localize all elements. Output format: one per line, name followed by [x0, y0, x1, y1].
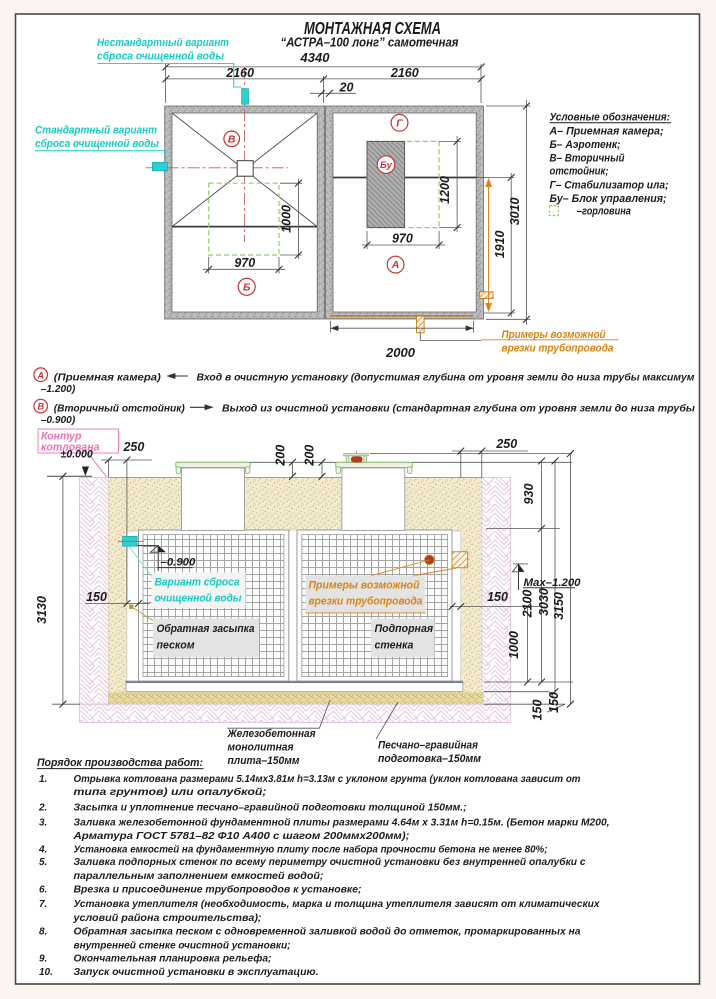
svg-text:930: 930 — [522, 484, 536, 505]
svg-text:условий района строительства);: условий района строительства); — [72, 913, 261, 924]
svg-text:3030: 3030 — [537, 588, 551, 616]
svg-text:20: 20 — [339, 81, 354, 95]
svg-text:150: 150 — [487, 590, 508, 604]
svg-text:Примеры возможной: Примеры возможной — [502, 329, 606, 341]
svg-text:В: В — [37, 402, 44, 412]
svg-text:5.: 5. — [39, 857, 47, 868]
svg-text:970: 970 — [392, 232, 413, 246]
svg-text:1000: 1000 — [507, 631, 521, 659]
svg-text:9.: 9. — [39, 954, 47, 965]
svg-text:7.: 7. — [39, 899, 47, 910]
svg-text:1200: 1200 — [438, 176, 452, 204]
svg-text:Обратная засыпка песком с одно: Обратная засыпка песком с одновременной … — [74, 926, 581, 938]
svg-text:врезки трубопровода: врезки трубопровода — [309, 596, 423, 608]
svg-text:Установка емкостей на фундамен: Установка емкостей на фундаментную плиту… — [74, 844, 548, 856]
svg-text:стенка: стенка — [375, 640, 414, 652]
svg-text:150: 150 — [531, 700, 545, 721]
svg-text:Бу: Бу — [380, 160, 393, 171]
svg-text:Подпорная: Подпорная — [375, 623, 434, 635]
svg-text:А: А — [36, 370, 44, 380]
svg-text:“АСТРА–100 лонг” самотечная: “АСТРА–100 лонг” самотечная — [281, 35, 459, 50]
svg-text:4340: 4340 — [300, 50, 331, 65]
svg-text:В: В — [228, 133, 236, 145]
svg-text:±0.000: ±0.000 — [61, 448, 93, 460]
svg-text:Выход из очистной установки (с: Выход из очистной установки (стандартная… — [222, 403, 695, 415]
svg-text:3150: 3150 — [552, 592, 566, 620]
svg-text:Условные обозначения:: Условные обозначения: — [550, 111, 671, 123]
svg-text:типа грунтов) или опалубкой;: типа грунтов) или опалубкой; — [74, 786, 267, 798]
svg-text:монолитная: монолитная — [228, 742, 295, 754]
svg-text:отстойник;: отстойник; — [550, 165, 609, 177]
svg-text:Примеры возможной: Примеры возможной — [309, 580, 421, 592]
svg-text:10.: 10. — [39, 967, 53, 978]
svg-text:сброса очищенной воды: сброса очищенной воды — [97, 51, 224, 63]
svg-text:–0.900): –0.900) — [41, 415, 76, 426]
svg-text:4.: 4. — [38, 845, 47, 856]
svg-text:2160: 2160 — [390, 66, 419, 80]
svg-text:–горловина: –горловина — [577, 205, 631, 217]
svg-text:Железобетонная: Железобетонная — [227, 728, 317, 740]
svg-text:Нестандартный вариант: Нестандартный вариант — [97, 37, 229, 49]
svg-text:песком: песком — [157, 640, 195, 652]
svg-text:очищенной воды: очищенной воды — [155, 593, 242, 605]
svg-text:8.: 8. — [39, 927, 47, 938]
svg-text:Арматура ГОСТ 5781–82 Ф10 А400: Арматура ГОСТ 5781–82 Ф10 А400 с шагом 2… — [72, 831, 409, 842]
svg-text:В– Вторичный: В– Вторичный — [550, 152, 625, 164]
svg-text:3010: 3010 — [508, 197, 522, 225]
svg-text:2.: 2. — [38, 802, 47, 813]
svg-text:6.: 6. — [39, 885, 47, 896]
svg-text:Заливка подпорных стенок по вс: Заливка подпорных стенок по всему периме… — [74, 856, 586, 868]
svg-text:Г– Стабилизатор ила;: Г– Стабилизатор ила; — [550, 180, 669, 192]
svg-text:Б: Б — [243, 281, 251, 293]
svg-text:Вариант сброса: Вариант сброса — [155, 577, 240, 589]
svg-text:150: 150 — [86, 590, 107, 604]
svg-text:Засыпка и уплотнение песчано–г: Засыпка и уплотнение песчано–гравийной п… — [74, 802, 467, 813]
svg-text:(Приемная камера): (Приемная камера) — [54, 372, 162, 383]
svg-text:Вход в очистную установку (доп: Вход в очистную установку (допустимая гл… — [197, 371, 695, 383]
svg-text:Врезка и присоединение трубопр: Врезка и присоединение трубопроводов к у… — [74, 884, 362, 896]
svg-text:(Вторичный отстойник): (Вторичный отстойник) — [54, 404, 186, 415]
svg-text:Max–1.200: Max–1.200 — [524, 577, 582, 589]
svg-text:1910: 1910 — [493, 230, 507, 258]
svg-text:плита–150мм: плита–150мм — [228, 755, 300, 767]
svg-text:1000: 1000 — [280, 205, 294, 233]
svg-text:Бу– Блок управления;: Бу– Блок управления; — [550, 193, 667, 205]
svg-text:200: 200 — [273, 445, 287, 467]
svg-text:Установка утеплителя (необходи: Установка утеплителя (необходимость, мар… — [74, 898, 600, 910]
svg-text:подготовка–150мм: подготовка–150мм — [378, 753, 481, 765]
svg-text:сброса очищенной воды: сброса очищенной воды — [35, 138, 159, 150]
svg-text:врезки трубопровода: врезки трубопровода — [502, 342, 614, 354]
svg-text:3.: 3. — [39, 818, 47, 829]
svg-text:внутренней стенке очистной уст: внутренней стенке очистной установки; — [74, 940, 291, 951]
svg-text:А: А — [391, 259, 400, 271]
svg-text:–1.200): –1.200) — [41, 384, 76, 395]
svg-text:–0.900: –0.900 — [161, 556, 197, 568]
svg-text:250: 250 — [495, 437, 517, 451]
svg-text:А– Приемная камера;: А– Приемная камера; — [549, 125, 664, 137]
svg-text:1.: 1. — [39, 774, 47, 785]
svg-text:970: 970 — [234, 256, 255, 270]
svg-text:Обратная засыпка: Обратная засыпка — [157, 623, 255, 635]
svg-text:250: 250 — [122, 440, 144, 454]
svg-text:Песчано–гравийная: Песчано–гравийная — [378, 740, 479, 752]
svg-text:Г: Г — [396, 117, 403, 129]
svg-text:200: 200 — [303, 445, 317, 467]
svg-text:2160: 2160 — [225, 66, 254, 80]
svg-text:2000: 2000 — [385, 345, 416, 360]
svg-text:150: 150 — [547, 692, 561, 713]
svg-text:3130: 3130 — [35, 596, 49, 624]
svg-text:Заливка железобетонной фундаме: Заливка железобетонной фундаментной плит… — [74, 817, 610, 829]
svg-text:Окончательная планировка релье: Окончательная планировка рельефа; — [74, 953, 272, 965]
svg-text:параллельным заполнением емкос: параллельным заполнением емкостей водой; — [74, 871, 324, 882]
svg-text:Б– Аэротенк;: Б– Аэротенк; — [550, 139, 621, 151]
svg-text:Отрывка котлована размерами 5.: Отрывка котлована размерами 5.14мх3.81м … — [74, 774, 581, 785]
svg-text:2100: 2100 — [521, 590, 535, 619]
svg-text:Стандартный вариант: Стандартный вариант — [35, 125, 157, 137]
svg-text:Запуск очистной установки в эк: Запуск очистной установки в эксплуатацию… — [74, 967, 319, 978]
svg-text:Порядок производства работ:: Порядок производства работ: — [37, 757, 203, 769]
